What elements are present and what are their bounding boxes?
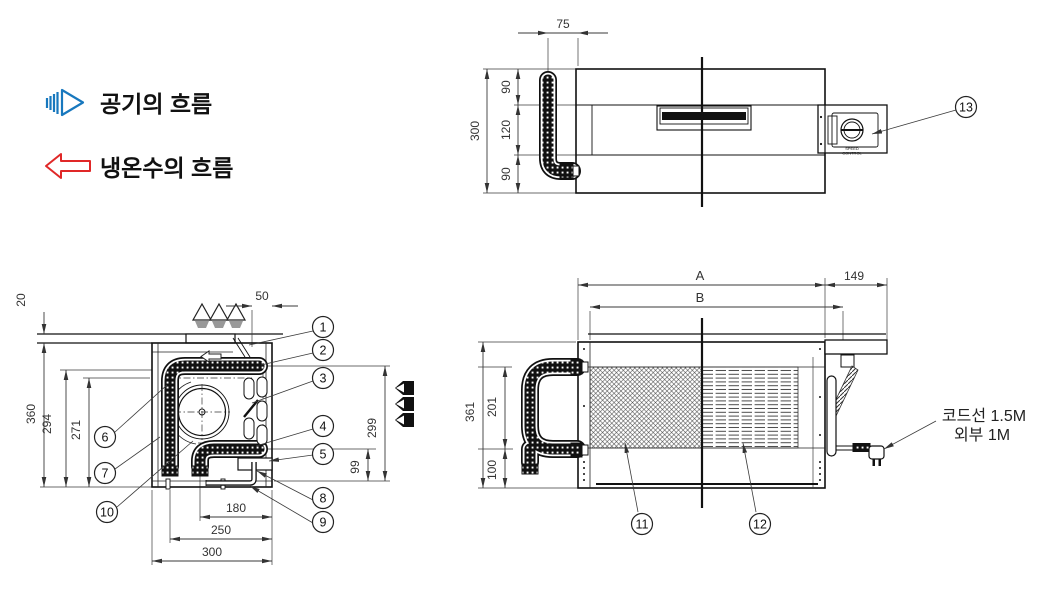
leader-2: [261, 353, 313, 365]
speed-control-label-2: CONTROL: [842, 151, 862, 156]
drain-pan: [206, 458, 272, 486]
dim-front-a: A: [696, 268, 705, 283]
leader-11: [625, 443, 638, 512]
plan-view: 75 300 90 120 90: [468, 17, 977, 207]
leader-8: [257, 471, 313, 500]
dim-front-bottom: 100: [485, 460, 499, 480]
dim-side-coil-mid: 271: [69, 420, 83, 440]
front-view: A 149 B 361 201 100: [463, 268, 1026, 535]
svg-text:3: 3: [320, 371, 327, 385]
callout-2: 2: [313, 340, 334, 361]
cord-note-line2: 외부 1M: [954, 426, 1010, 444]
svg-text:12: 12: [753, 517, 767, 531]
dim-front-b: B: [696, 290, 705, 305]
dim-plan-height: 300: [468, 121, 482, 141]
dim-plan-seg-bottom: 90: [499, 167, 513, 181]
water-flow-icon: [46, 154, 90, 178]
svg-text:2: 2: [320, 343, 327, 357]
fan-coil-unit-drawing: 공기의 흐름 냉온수의 흐름 75 300 90 120 90: [0, 0, 1043, 599]
drawing-page: 공기의 흐름 냉온수의 흐름 75 300 90 120 90: [0, 0, 1043, 599]
callout-4: 4: [313, 416, 334, 437]
svg-text:4: 4: [320, 419, 327, 433]
callout-1: 1: [313, 317, 334, 338]
dim-front-pipe-span: 201: [485, 397, 499, 417]
mounting-ledge: [825, 340, 887, 354]
callout-9: 9: [313, 512, 334, 533]
callout-8: 8: [313, 488, 334, 509]
leader-cord-note: [884, 421, 936, 449]
dim-side-outlet: 50: [255, 289, 269, 303]
power-plug-icon: [869, 446, 884, 466]
louver-section: [702, 367, 798, 448]
callout-11: 11: [632, 514, 653, 535]
svg-text:6: 6: [102, 430, 109, 444]
svg-text:11: 11: [636, 517, 649, 531]
water-pipe-plan: [548, 80, 579, 178]
leader-7: [115, 437, 160, 469]
speed-control-knob[interactable]: [841, 119, 863, 141]
leader-5: [269, 455, 313, 461]
callout-7: 7: [95, 463, 116, 484]
svg-text:10: 10: [100, 505, 114, 519]
hanger-bracket: [827, 355, 858, 456]
discharge-grille-plan: [657, 106, 751, 130]
callout-10: 10: [97, 502, 118, 523]
callout-5: 5: [313, 444, 334, 465]
svg-text:9: 9: [320, 515, 327, 529]
dim-front-bracket: 149: [844, 269, 864, 283]
cord-note-line1: 코드선 1.5M: [942, 407, 1026, 425]
air-flow-icon: [47, 90, 83, 115]
dim-side-drain: 99: [348, 460, 362, 474]
dim-plan-pipe-offset: 75: [556, 17, 570, 31]
discharge-air-symbols: [193, 304, 245, 328]
dim-plan-seg-top: 90: [499, 80, 513, 94]
louver-slots: [244, 377, 267, 445]
dim-front-height: 361: [463, 402, 477, 422]
dim-side-w-outer: 300: [202, 545, 222, 559]
leader-1: [249, 331, 313, 345]
leader-10: [117, 441, 193, 507]
unit-body-plan: [576, 69, 825, 193]
legend-air-flow-label: 공기의 흐름: [100, 91, 212, 117]
air-inlet-symbols: [395, 381, 414, 427]
speed-control-box: SPEED CONTROL: [818, 105, 887, 156]
dim-side-w-mid: 250: [211, 523, 231, 537]
ceiling-collar: [186, 334, 235, 343]
power-cord: [836, 444, 884, 467]
svg-text:7: 7: [102, 466, 109, 480]
dim-side-ceiling: 20: [14, 293, 28, 307]
svg-text:8: 8: [320, 491, 327, 505]
svg-text:5: 5: [320, 447, 327, 461]
legend: 공기의 흐름 냉온수의 흐름: [46, 90, 233, 181]
dim-plan-seg-mid: 120: [499, 120, 513, 140]
leader-6: [115, 385, 167, 432]
callout-12: 12: [750, 514, 771, 535]
dim-side-w-inner: 180: [226, 501, 246, 515]
legend-water-flow-label: 냉온수의 흐름: [100, 155, 233, 181]
leader-12: [743, 443, 756, 512]
callout-3: 3: [313, 368, 334, 389]
coil-fin-section: [590, 367, 702, 448]
svg-text:1: 1: [320, 320, 327, 334]
side-section-view: 20 360 294 271 50 299 99 180 250 300: [14, 289, 414, 565]
dim-side-right: 299: [365, 418, 379, 438]
dim-side-height: 360: [24, 404, 38, 424]
svg-text:13: 13: [959, 100, 973, 114]
callout-6: 6: [95, 427, 116, 448]
damper-blade: [244, 400, 258, 417]
callout-13: 13: [956, 97, 977, 118]
dim-side-coil-top: 294: [40, 414, 54, 434]
